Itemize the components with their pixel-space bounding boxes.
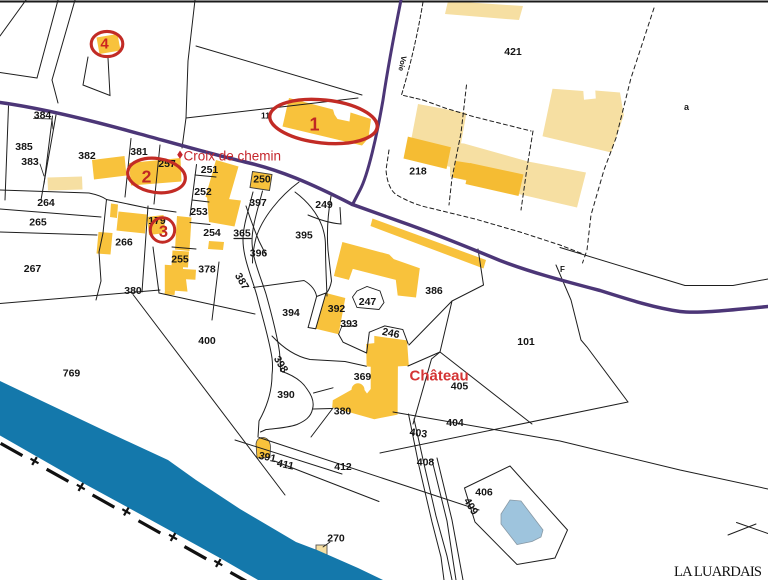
svg-text:378: 378 [198,264,216,276]
svg-text:3: 3 [159,223,168,241]
svg-text:253: 253 [190,206,208,218]
svg-text:4: 4 [100,36,109,53]
svg-text:266: 266 [115,237,133,249]
svg-text:369: 369 [354,371,372,383]
svg-text:406: 406 [475,487,493,499]
svg-text:218: 218 [409,166,427,178]
svg-text:381: 381 [130,146,148,158]
svg-text:250: 250 [253,174,271,186]
svg-text:390: 390 [277,389,295,401]
svg-text:382: 382 [78,150,96,162]
svg-text:254: 254 [203,227,221,239]
svg-text:247: 247 [359,296,377,308]
svg-text:1: 1 [309,115,319,135]
svg-text:Croix de chemin: Croix de chemin [184,149,282,164]
svg-text:F: F [560,265,565,274]
svg-text:421: 421 [504,46,522,58]
svg-text:249: 249 [315,199,333,211]
svg-text:769: 769 [63,368,81,380]
svg-text:380: 380 [334,406,352,418]
svg-text:380: 380 [124,285,142,297]
svg-text:252: 252 [194,186,212,198]
svg-text:384: 384 [34,110,52,122]
svg-text:LA LUARDAIS: LA LUARDAIS [674,564,762,580]
svg-text:396: 396 [250,248,268,260]
svg-text:264: 264 [37,197,55,209]
svg-text:386: 386 [425,285,443,297]
svg-text:270: 270 [327,533,345,545]
svg-text:393: 393 [340,318,358,330]
svg-text:251: 251 [201,164,219,176]
svg-text:255: 255 [171,254,189,266]
svg-text:403: 403 [409,426,428,440]
svg-text:385: 385 [15,141,33,153]
svg-text:2: 2 [142,167,152,187]
svg-text:394: 394 [282,307,300,319]
svg-text:365: 365 [233,228,251,240]
svg-text:397: 397 [249,197,267,209]
svg-text:408: 408 [417,457,435,469]
svg-text:265: 265 [29,217,47,229]
svg-text:101: 101 [517,336,535,348]
svg-text:Château: Château [410,368,469,385]
svg-text:267: 267 [24,263,42,275]
svg-text:383: 383 [21,156,39,168]
svg-text:404: 404 [446,417,464,429]
svg-text:400: 400 [198,335,216,347]
svg-text:392: 392 [328,303,346,315]
svg-text:395: 395 [295,230,313,242]
svg-text:412: 412 [334,461,352,473]
